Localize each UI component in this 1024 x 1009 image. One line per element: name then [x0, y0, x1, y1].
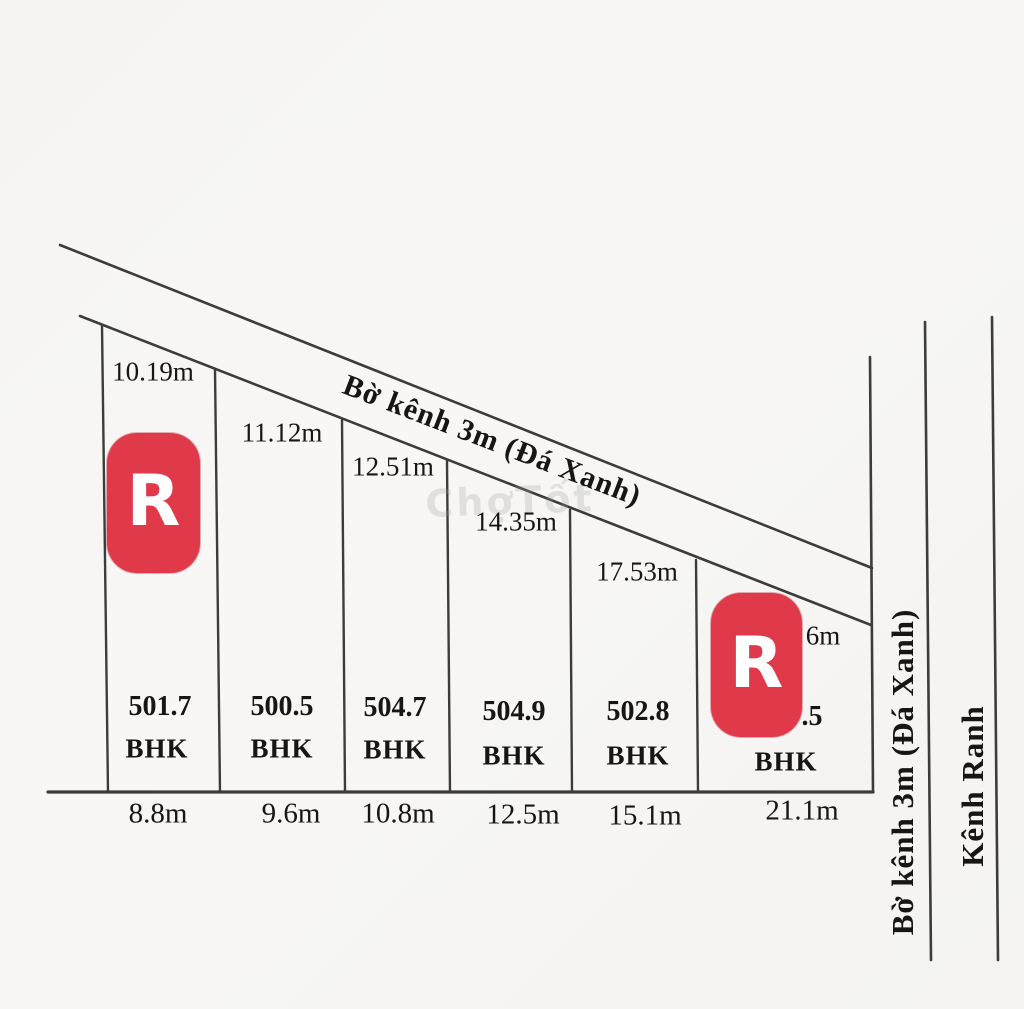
plot-boundary-2: [215, 369, 220, 792]
plot-frontage-1: 8.8m: [129, 798, 188, 831]
kenh-ranh-label: Kênh Ranh: [955, 705, 991, 866]
plot-top-edge-4: 14.35m: [475, 507, 557, 538]
plot-area-2: 500.5: [251, 691, 314, 723]
plot-boundary-3: [342, 420, 345, 792]
plot-top-edge-3: 12.51m: [352, 452, 434, 483]
plot-boundary-5: [570, 510, 572, 792]
r-logo-letter-1: R: [127, 466, 181, 536]
plot-frontage-3: 10.8m: [361, 798, 434, 831]
plot-boundary-6: [696, 560, 698, 792]
plot-top-edge-1: 10.19m: [112, 357, 194, 388]
plot-area-1: 501.7: [129, 691, 192, 723]
plot-top-edge-2: 11.12m: [242, 418, 323, 449]
canal-right-label: Bờ kênh 3m (Đá Xanh): [885, 609, 921, 936]
plot-area-4: 504.9: [483, 696, 546, 728]
r-logo-letter-2: R: [730, 628, 784, 698]
plot-frontage-6: 21.1m: [765, 795, 838, 828]
plot-frontage-2: 9.6m: [262, 798, 321, 831]
r-logo-badge-1: R: [107, 433, 200, 573]
plot-area-5: 502.8: [607, 696, 670, 728]
plot-top-edge-6: 6m: [806, 621, 841, 652]
canal-right-bank-line-1: [925, 322, 931, 960]
plot-top-edge-5: 17.53m: [596, 557, 678, 588]
plot-code-2: BHK: [250, 734, 313, 765]
canal-right-bank-line-2: [992, 317, 998, 960]
plot-boundary-1: [102, 325, 108, 792]
plot-frontage-4: 12.5m: [486, 799, 559, 832]
plot-code-6: BHK: [754, 747, 817, 778]
plot-boundary-right: [870, 357, 873, 792]
plot-area-3: 504.7: [364, 692, 427, 724]
plot-frontage-5: 15.1m: [608, 800, 681, 833]
plot-code-4: BHK: [482, 741, 545, 772]
plot-area-6: .5: [802, 701, 823, 733]
plot-code-5: BHK: [606, 741, 669, 772]
r-logo-badge-2: R: [711, 593, 802, 737]
plot-code-3: BHK: [363, 735, 426, 766]
plot-diagram: ChợTốt Bờ kênh 3m (Đá Xanh) 10.19m 11.12…: [0, 0, 1024, 1009]
plot-code-1: BHK: [125, 734, 188, 765]
